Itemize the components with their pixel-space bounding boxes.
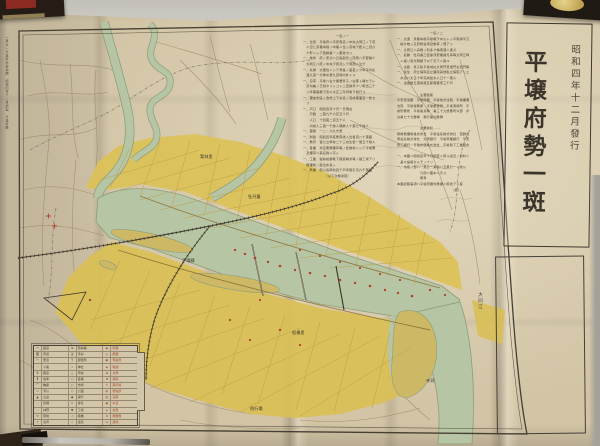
- map-title: 平壌府勢一斑: [514, 50, 550, 218]
- place-label: 牡丹臺: [248, 193, 261, 200]
- river-name-label: 大同江: [478, 291, 483, 310]
- place-label: 飛行場: [250, 405, 263, 412]
- paperweight-red-detail: [6, 0, 37, 9]
- map-sheet: 箕林里 牡丹臺 平壌驛 船橋里 飛行場 寺洞 大同江 一萬分一平壌府市街地圖 昭…: [0, 0, 600, 446]
- photo-scene: 箕林里 牡丹臺 平壌驛 船橋里 飛行場 寺洞 大同江 一萬分一平壌府市街地圖 昭…: [0, 0, 600, 446]
- title-panel: 昭和四年十二月發行 平壌府勢一斑: [503, 22, 592, 247]
- place-label: 箕林里: [200, 153, 213, 160]
- place-label: 船橋里: [292, 329, 305, 336]
- legend-row: †境界♨温泉⊟其他: [34, 419, 137, 425]
- text-line: （以下次欄參照）: [303, 174, 392, 180]
- legend-table: ━國道⊕警察署◉府廳〓府道卍寺刹◎郡廳╍里道〒郵便局▣專賣局┄小路☆神社⊞稅關┿…: [33, 345, 138, 426]
- place-label: 寺洞: [426, 377, 434, 383]
- legend-symbol: ⊟: [102, 420, 110, 425]
- margin-imprint-note: 一萬分一平壌府市街地圖 昭和四年十二月調製 平壌府廳: [5, 36, 9, 156]
- red-cross-marker: [46, 214, 57, 229]
- legend-label: 境界: [41, 420, 68, 425]
- legend-symbol: †: [34, 420, 41, 425]
- legend-label: 其他: [110, 420, 137, 425]
- notes-column-right: 一班ノ二一、交通 京義本線平壌驛ヲ中心トシ平南線平元 線分岐シ又府營電車自動車ノ…: [397, 31, 489, 217]
- text-line: （終）: [397, 188, 489, 194]
- paperweight-seal-detail: [550, 0, 585, 12]
- legend-symbol: ♨: [68, 420, 76, 425]
- legend-label: 温泉: [76, 420, 103, 425]
- notes-column-left: 一班ノ一一、位置 平壌府ハ平安南道ノ中央大同江ノ下流 ニ沿ヒ京義本線ノ中樞ニ位シ…: [303, 34, 392, 194]
- blank-panel: [495, 256, 586, 435]
- publish-date: 昭和四年十二月發行: [566, 44, 582, 152]
- place-label: 平壌驛: [182, 257, 195, 264]
- wall-right-edge: [589, 175, 600, 446]
- legend-extension: [137, 352, 145, 411]
